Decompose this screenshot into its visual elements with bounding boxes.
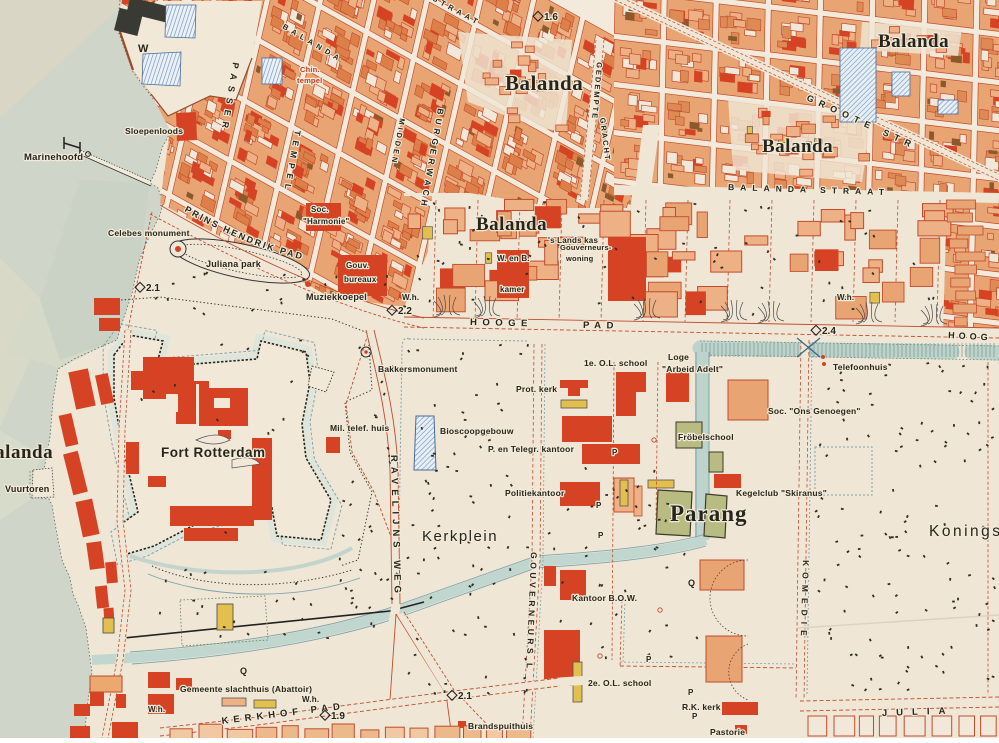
- svg-text:tempel: tempel: [297, 76, 322, 85]
- svg-text:Balanda: Balanda: [0, 442, 53, 463]
- svg-text:Sloepenloods: Sloepenloods: [125, 126, 183, 136]
- svg-text:Muziekkoepel: Muziekkoepel: [306, 292, 367, 302]
- svg-text:Fröbelschool: Fröbelschool: [678, 432, 734, 442]
- svg-text:Mil. telef. huis: Mil. telef. huis: [330, 423, 389, 433]
- svg-text:1.9: 1.9: [331, 711, 345, 722]
- svg-text:Kantoor B.O.W.: Kantoor B.O.W.: [572, 593, 637, 603]
- svg-text:Kegelclub "Skiranus": Kegelclub "Skiranus": [736, 488, 827, 498]
- svg-text:2.2: 2.2: [398, 306, 412, 317]
- svg-text:Gouverneurs-: Gouverneurs-: [560, 243, 612, 252]
- svg-text:Gemeente slachthuis (Abatto: Gemeente slachthuis (Abattoir): [180, 684, 312, 694]
- svg-text:Parang: Parang: [670, 501, 748, 526]
- svg-text:kamer: kamer: [500, 285, 525, 294]
- svg-text:P. en Telegr. kantoor: P. en Telegr. kantoor: [488, 444, 575, 454]
- svg-text:Balanda: Balanda: [878, 31, 949, 52]
- svg-text:P: P: [688, 688, 694, 697]
- svg-text:Soc.: Soc.: [311, 205, 329, 214]
- svg-text:W.h.: W.h.: [402, 293, 419, 302]
- svg-text:"Harmonie": "Harmonie": [303, 217, 349, 226]
- svg-text:Soc. "Ons Genoegen": Soc. "Ons Genoegen": [768, 406, 861, 416]
- svg-text:"Arbeid Adelt": "Arbeid Adelt": [662, 364, 723, 374]
- svg-text:W. en B.: W. en B.: [497, 254, 530, 263]
- svg-text:P: P: [692, 712, 698, 721]
- svg-text:P: P: [646, 655, 652, 664]
- svg-text:W: W: [138, 43, 149, 55]
- svg-text:Konings: Konings: [929, 523, 999, 540]
- svg-text:2e. O.L. school: 2e. O.L. school: [588, 678, 651, 688]
- svg-text:P: P: [596, 501, 602, 510]
- svg-text:P: P: [612, 448, 618, 457]
- svg-text:Gouv.: Gouv.: [346, 261, 369, 270]
- svg-text:HOOGE: HOOGE: [470, 317, 533, 329]
- svg-text:Q: Q: [688, 578, 695, 588]
- svg-text:Brandspuithuis: Brandspuithuis: [468, 721, 533, 731]
- svg-text:Balanda: Balanda: [476, 214, 547, 235]
- svg-text:Balanda: Balanda: [505, 71, 583, 95]
- svg-text:Chin.: Chin.: [300, 65, 320, 74]
- svg-text:Balanda: Balanda: [762, 136, 833, 157]
- svg-text:Loge: Loge: [668, 352, 689, 362]
- svg-text:W.h.: W.h.: [302, 695, 319, 704]
- svg-text:1e. O.L. school: 1e. O.L. school: [584, 358, 647, 368]
- svg-text:2.1: 2.1: [458, 691, 472, 702]
- svg-text:R.K. kerk: R.K. kerk: [682, 702, 721, 712]
- svg-text:Bakkersmonument: Bakkersmonument: [378, 364, 458, 374]
- svg-text:Q: Q: [240, 666, 247, 676]
- svg-text:2.1: 2.1: [146, 283, 160, 294]
- svg-text:bureaux: bureaux: [344, 275, 377, 284]
- svg-text:Politiekantoor: Politiekantoor: [505, 488, 565, 498]
- svg-text:Telefoonhuis: Telefoonhuis: [833, 362, 888, 372]
- svg-text:Celebes monument: Celebes monument: [108, 228, 190, 238]
- svg-text:P: P: [598, 531, 604, 540]
- svg-text:Juliana park: Juliana park: [206, 259, 262, 269]
- svg-text:1.6: 1.6: [544, 12, 558, 23]
- svg-text:woning: woning: [565, 254, 594, 263]
- svg-text:Kerkplein: Kerkplein: [422, 528, 498, 545]
- svg-text:W.h.: W.h.: [148, 705, 165, 714]
- svg-text:Bioscoopgebouw: Bioscoopgebouw: [440, 426, 514, 436]
- svg-text:W.h.: W.h.: [837, 293, 854, 302]
- svg-text:2.4: 2.4: [822, 326, 836, 337]
- svg-text:Vuurtoren: Vuurtoren: [5, 484, 49, 494]
- svg-text:PAD: PAD: [583, 320, 619, 332]
- svg-text:Pastorie: Pastorie: [710, 727, 745, 737]
- svg-text:Fort Rotterdam: Fort Rotterdam: [161, 445, 266, 460]
- svg-text:Prot. kerk: Prot. kerk: [516, 384, 557, 394]
- svg-text:Marinehoofd: Marinehoofd: [24, 152, 83, 163]
